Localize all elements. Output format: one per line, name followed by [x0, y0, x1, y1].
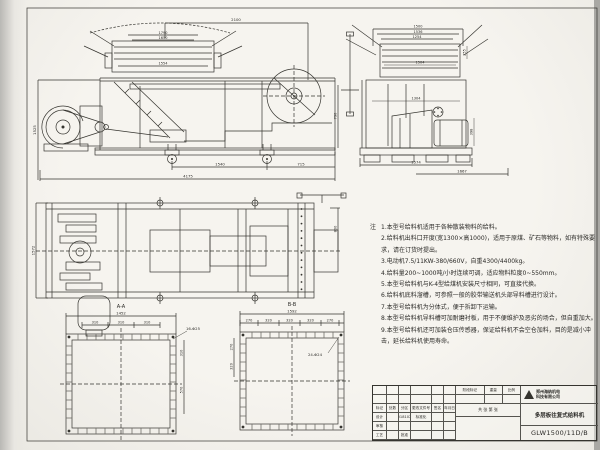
- title-block-cell: [399, 422, 411, 431]
- title-block-cell: 更改文件号: [411, 404, 432, 413]
- title-block-cell: [411, 422, 432, 431]
- dim-aa-side-a: 310: [180, 350, 184, 357]
- dim-bb-sp2: 320: [265, 319, 272, 323]
- title-block-cell: 签名: [432, 404, 444, 413]
- title-block-cell: [444, 413, 456, 422]
- end-drive-unit: 398: [360, 107, 474, 162]
- dim-aa-sp1: 310: [92, 321, 99, 325]
- plan-handle: [297, 193, 346, 203]
- drawing-number: GLW1500/11D/B: [521, 426, 598, 440]
- title-block-cell: [373, 386, 387, 395]
- title-block-cell: [432, 431, 444, 440]
- title-block-cell: [444, 422, 456, 431]
- title-block-cell: [432, 386, 444, 395]
- weight-value-cell: [485, 395, 503, 404]
- drawing-sheet: 2100 1790 1650 1554: [0, 0, 600, 450]
- notes-block: 注 1.本型号给料机适用于各种散装物料的给料。2.给料机出料口开度(宽1300×…: [370, 222, 599, 347]
- title-block-cell: [444, 395, 456, 404]
- title-block-cell: 年月日: [444, 404, 456, 413]
- title-block-spare-cell: [456, 417, 521, 440]
- end-elevation-view: 1500 1536 1254 1504 255 1304: [341, 25, 508, 177]
- dim-end-top-a: 1500: [414, 25, 423, 29]
- section-aa-label: A-A: [117, 304, 126, 310]
- dim-side-right-height: 790: [334, 113, 338, 120]
- title-block-cell: 分区: [399, 404, 411, 413]
- dim-rear-offset: 715: [297, 162, 305, 167]
- note-line: 8.本型号给料机导料槽可加耐磨衬板，用于不便维护及恶劣的场合，但自重加大。: [381, 313, 599, 324]
- title-block-cell: [399, 395, 411, 404]
- company-name: 郑州海纳机电 科技有限公司: [536, 390, 560, 399]
- title-block-cell: [387, 431, 399, 440]
- title-block-cell: [432, 395, 444, 404]
- dim-lip-height: 255: [463, 49, 467, 56]
- title-block-stage-area: 阶段标记重量比例 共 张 第 张: [456, 386, 521, 440]
- title-block-cell: [444, 431, 456, 440]
- dim-base-width: 1574: [411, 160, 421, 165]
- section-bb-label: B-B: [288, 302, 297, 308]
- stage-header-cell: 比例: [503, 386, 521, 395]
- stage-value-cell: [456, 395, 485, 404]
- note-line: 7.本型号给料机为分体式，便于拆卸下运输。: [381, 302, 599, 313]
- dim-hopper-b: 1650: [159, 36, 168, 40]
- title-block-cell: [387, 395, 399, 404]
- dim-bb-side-b: 320: [230, 363, 234, 370]
- dim-side-top: 2100: [231, 17, 241, 22]
- dim-end-top-c: 1254: [413, 35, 423, 39]
- title-block-cell: 标记: [373, 404, 387, 413]
- dim-offset-right: 1667: [457, 169, 467, 174]
- plan-flange-dots: [301, 208, 303, 290]
- company-name-line2: 科技有限公司: [536, 395, 560, 400]
- stage-header-cell: 重量: [485, 386, 503, 395]
- end-body: 1304: [341, 32, 466, 148]
- note-line: 9.本型号给料机还可加装仓压传感器，保证给料机不会空仓加料，目的是减小冲击，延长…: [381, 325, 599, 348]
- side-flywheel: [263, 65, 325, 127]
- side-elevation-view: 2100 1790 1650 1554: [32, 17, 338, 181]
- title-block-cell: [399, 386, 411, 395]
- product-name: 多层板往复式给料机: [521, 404, 598, 426]
- note-line: 2.给料机出料口开度(宽1300×高1000)，适用于原煤、矿石等物料，如有特殊…: [381, 233, 599, 256]
- dim-bb-overall: 1592: [287, 309, 297, 314]
- title-block-cell: 审核: [373, 422, 387, 431]
- stage-header-row: 阶段标记重量比例: [456, 386, 521, 395]
- note-line: 1.本型号给料机适用于各种散装物料的给料。: [381, 222, 599, 233]
- dim-aa-sp2: 310: [118, 321, 125, 325]
- section-bb: B-B 1592 270 320 320 320 270 24-Φ24 2: [230, 302, 351, 436]
- title-block-cell: 设计: [373, 413, 387, 422]
- sheet-count-note: 共 张 第 张: [456, 404, 521, 417]
- dim-motor-height: 398: [470, 129, 474, 136]
- title-block-cell: [387, 413, 399, 422]
- company-logo-icon: [524, 390, 534, 399]
- company-logo: 郑州海纳机电 科技有限公司: [521, 386, 598, 404]
- dim-deck-inner: 1504: [416, 61, 426, 65]
- dim-bb-sp3: 320: [286, 319, 293, 323]
- title-block-cell: [432, 413, 444, 422]
- plan-bolts: [157, 197, 258, 304]
- note-line: 6.给料机底料溜槽，可参照一般的胶带输送机头部导料槽进行设计。: [381, 290, 599, 301]
- title-block-revision-grid: 标记处数分区更改文件号签名年月日设计20181026标准化审核工艺批准: [373, 386, 456, 440]
- title-block-cell: 20181026: [399, 413, 411, 422]
- dim-end-top-b: 1536: [414, 30, 423, 34]
- dim-overall-length: 4175: [183, 174, 193, 179]
- stage-value-row: [456, 395, 521, 404]
- title-block-cell: 批准: [399, 431, 411, 440]
- scale-value-cell: [503, 395, 521, 404]
- title-block-cell: [411, 386, 432, 395]
- dim-aa-overall: 1452: [116, 311, 126, 316]
- dim-bb-side-a: 270: [230, 344, 234, 351]
- dim-aa-side-b: 570: [180, 387, 184, 394]
- notes-list: 1.本型号给料机适用于各种散装物料的给料。2.给料机出料口开度(宽1300×高1…: [381, 222, 599, 347]
- dim-plan-inlet-offset: 800: [334, 226, 338, 233]
- title-block-cell: [432, 422, 444, 431]
- title-block-right: 郑州海纳机电 科技有限公司 多层板往复式给料机 GLW1500/11D/B: [521, 386, 598, 440]
- stage-header-cell: 阶段标记: [456, 386, 485, 395]
- dim-bb-sp1: 270: [246, 319, 253, 323]
- dim-aa-sp3: 310: [144, 321, 151, 325]
- title-block-cell: 工艺: [373, 431, 387, 440]
- title-block-cell: 处数: [387, 404, 399, 413]
- title-block-cell: [373, 395, 387, 404]
- side-hopper: 1790 1650 1554: [84, 23, 242, 72]
- dim-bb-sp5: 270: [327, 319, 334, 323]
- title-block-cell: [387, 422, 399, 431]
- note-line: 3.电动机7.5/11KW-380/660V，自重4300/4400kg。: [381, 256, 599, 267]
- title-block-cell: [411, 395, 432, 404]
- note-line: 4.给料量200~1000吨/小时连续可调，适应物料粒度0~550mm。: [381, 268, 599, 279]
- dim-bb-holes: 24-Φ24: [308, 352, 323, 357]
- plan-view: 1572 800: [31, 193, 347, 336]
- dim-hopper-inner: 1554: [159, 62, 169, 66]
- dim-wheel-spacing: 1540: [215, 162, 225, 167]
- title-block-cell: 标准化: [411, 413, 432, 422]
- dim-plan-width: 1572: [31, 245, 36, 255]
- section-aa: A-A 1452 310 310 310 16-Φ25 310 570: [60, 304, 201, 440]
- dim-aa-holes: 16-Φ25: [186, 326, 201, 331]
- dim-body-inner: 1304: [412, 97, 422, 101]
- notes-heading: 注: [370, 222, 376, 233]
- dim-side-height: 1525: [32, 125, 37, 135]
- dim-bb-sp4: 320: [307, 319, 314, 323]
- note-line: 5.本型号给料机与K-4型给煤机安装尺寸相同，可直接代换。: [381, 279, 599, 290]
- title-block-cell: [387, 386, 399, 395]
- title-block: 标记处数分区更改文件号签名年月日设计20181026标准化审核工艺批准 阶段标记…: [372, 385, 597, 441]
- title-block-cell: [444, 386, 456, 395]
- title-block-cell: [411, 431, 432, 440]
- dim-hopper-a: 1790: [159, 31, 168, 35]
